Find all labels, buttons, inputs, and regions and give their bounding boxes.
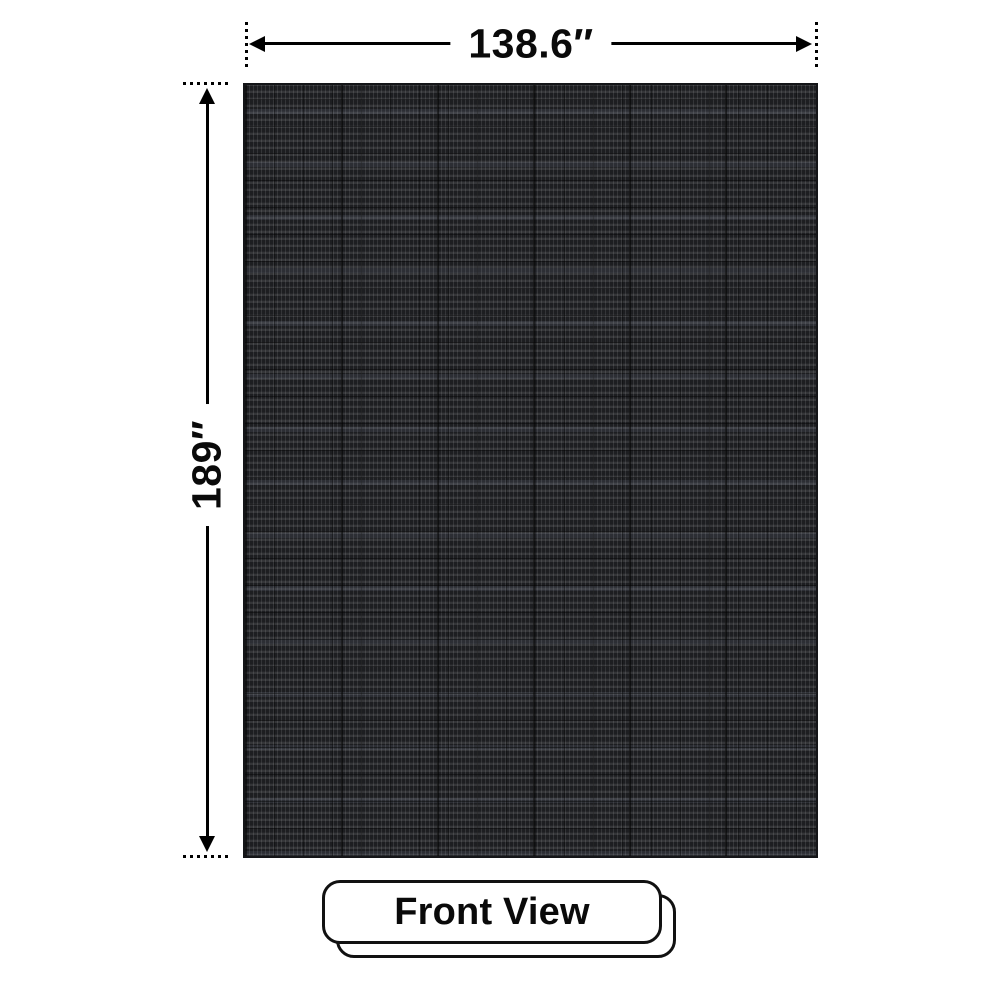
width-arrowhead-left-icon: [249, 36, 265, 52]
width-arrowhead-right-icon: [796, 36, 812, 52]
height-arrowhead-down-icon: [199, 836, 215, 852]
width-extent-tick-left: [245, 22, 248, 70]
height-dimension-label: 189″: [181, 404, 234, 526]
width-dimension-label: 138.6″: [450, 18, 611, 71]
height-extent-tick-bottom: [183, 855, 231, 858]
front-view-card: Front View: [322, 880, 662, 944]
height-extent-tick-top: [183, 82, 231, 85]
front-view-label: Front View: [394, 891, 590, 934]
height-arrowhead-up-icon: [199, 88, 215, 104]
width-extent-tick-right: [815, 22, 818, 70]
led-panel-texture: [243, 83, 818, 858]
product-dimension-diagram: 138.6″ 189″ Front View: [0, 0, 1000, 1000]
